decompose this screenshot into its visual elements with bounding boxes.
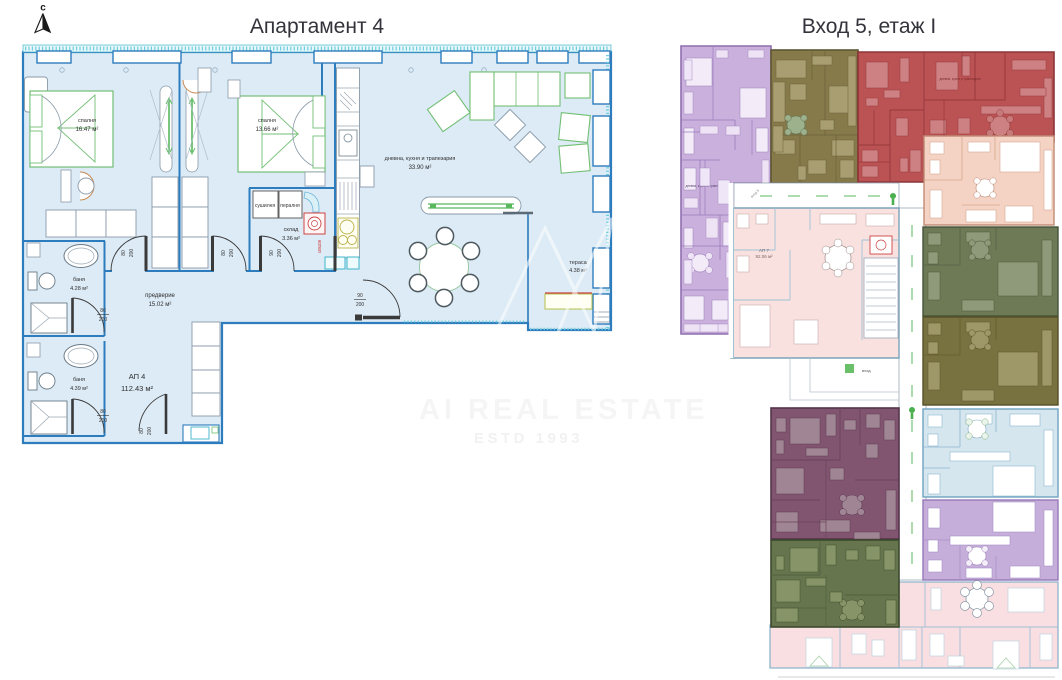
svg-text:тераса: тераса <box>569 260 587 266</box>
svg-text:200: 200 <box>99 317 108 323</box>
svg-text:80: 80 <box>221 250 227 256</box>
svg-text:спалня: спалня <box>78 118 96 124</box>
svg-text:90: 90 <box>357 293 363 299</box>
svg-text:сушилня: сушилня <box>255 203 275 209</box>
svg-text:200: 200 <box>99 418 108 424</box>
svg-text:200: 200 <box>229 249 235 258</box>
svg-text:15.02 м²: 15.02 м² <box>149 302 172 308</box>
svg-text:АП 4: АП 4 <box>129 372 146 381</box>
svg-text:с: с <box>40 3 46 14</box>
svg-text:Апартамент 4: Апартамент 4 <box>250 15 385 38</box>
svg-text:пералня: пералня <box>280 203 300 209</box>
svg-text:АП 7: АП 7 <box>759 248 769 253</box>
svg-text:200: 200 <box>147 427 153 436</box>
svg-text:4.28 м²: 4.28 м² <box>70 286 88 292</box>
svg-text:спалня: спалня <box>258 118 276 124</box>
svg-text:дневна, кухня и трапезария: дневна, кухня и трапезария <box>385 156 456 162</box>
svg-text:котел: котел <box>316 240 322 253</box>
svg-text:Вход 5, етаж I: Вход 5, етаж I <box>802 15 936 38</box>
svg-text:80: 80 <box>139 428 145 434</box>
svg-text:4.39 м²: 4.39 м² <box>70 386 88 392</box>
svg-text:200: 200 <box>129 249 135 258</box>
svg-text:13.66 м²: 13.66 м² <box>256 127 279 133</box>
svg-text:предверие: предверие <box>145 293 175 299</box>
svg-text:200: 200 <box>277 249 283 258</box>
svg-text:16.47 м²: 16.47 м² <box>76 127 99 133</box>
svg-text:200: 200 <box>356 302 365 308</box>
svg-text:дневна, кухня и трапезария: дневна, кухня и трапезария <box>940 77 981 81</box>
svg-text:33.90 м²: 33.90 м² <box>409 165 432 171</box>
svg-text:80: 80 <box>121 250 127 256</box>
svg-text:склад: склад <box>284 227 299 233</box>
svg-text:вход: вход <box>862 368 871 373</box>
svg-text:AI REAL ESTATE: AI REAL ESTATE <box>419 394 709 426</box>
svg-text:ESTD 1993: ESTD 1993 <box>474 430 583 447</box>
svg-text:90: 90 <box>269 250 275 256</box>
svg-text:80: 80 <box>100 409 106 415</box>
svg-text:80: 80 <box>100 308 106 314</box>
svg-text:3.36 м²: 3.36 м² <box>282 236 300 242</box>
svg-text:112.43 м²: 112.43 м² <box>121 384 154 393</box>
svg-text:баня: баня <box>73 277 85 283</box>
svg-text:баня: баня <box>73 377 85 383</box>
svg-text:92.06 м²: 92.06 м² <box>755 254 773 259</box>
